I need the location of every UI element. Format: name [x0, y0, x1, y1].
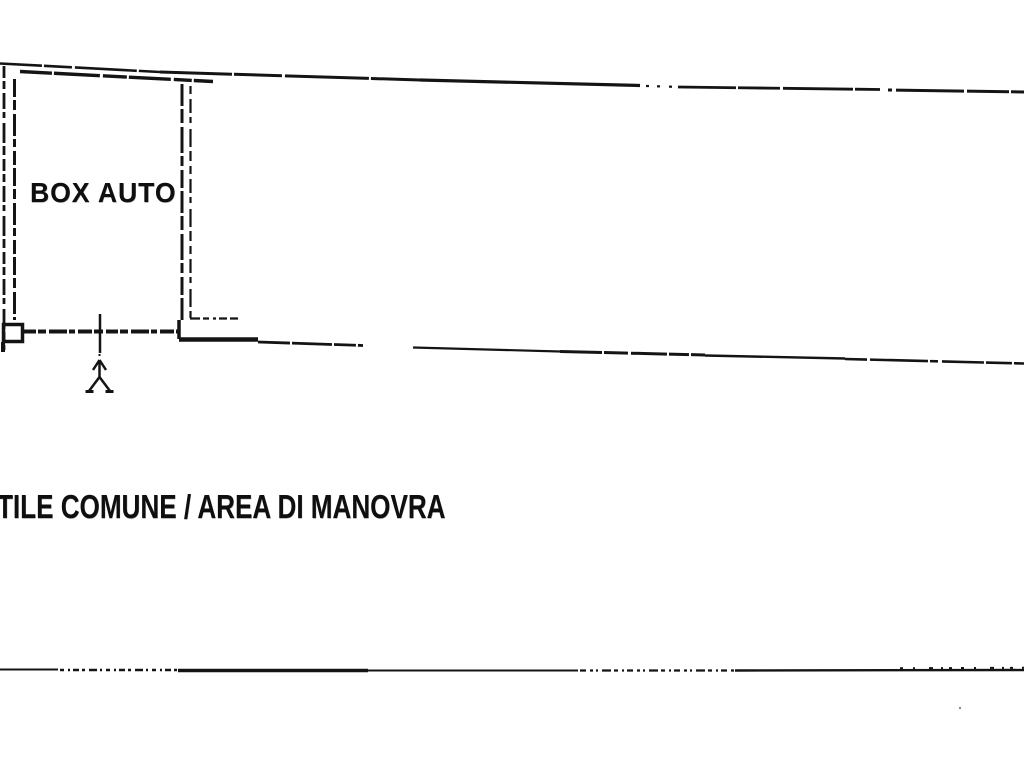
scan-speck	[959, 707, 961, 709]
middle-boundary-line	[179, 320, 1024, 364]
bottom-boundary-line	[0, 668, 1024, 671]
floor-plan-linework	[0, 0, 1024, 768]
room-label-box-auto: BOX AUTO	[30, 179, 177, 207]
garage-left-wall	[4, 66, 15, 350]
common-area-label: TILE COMUNE / AREA DI MANOVRA	[0, 490, 446, 523]
access-arrow-icon	[86, 354, 114, 392]
floor-plan-canvas: BOX AUTO TILE COMUNE / AREA DI MANOVRA	[0, 0, 1024, 768]
garage-left-jamb	[3, 325, 23, 353]
garage-right-wall	[182, 84, 238, 323]
